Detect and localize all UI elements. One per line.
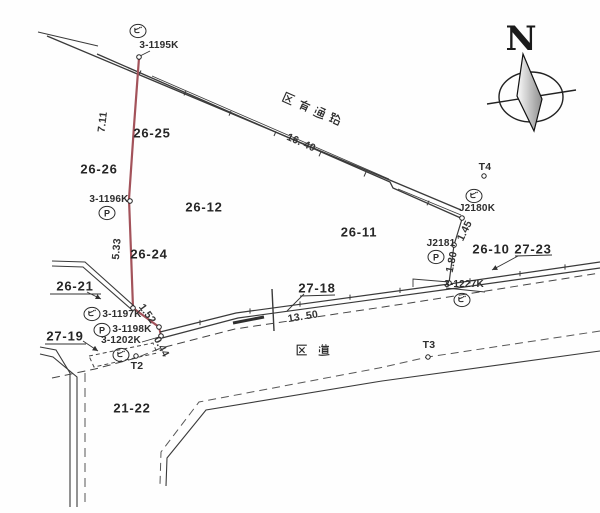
marker-bi-3-1202k xyxy=(113,348,129,361)
point-label-3-1197k: 3-1197K xyxy=(102,310,141,320)
parcel-label-27-18: 27-18 xyxy=(298,282,335,295)
point-label-j2180k: J2180K xyxy=(459,204,495,214)
parcel-label-26-11: 26-11 xyxy=(341,226,378,239)
point-label-t2: T2 xyxy=(131,361,144,372)
marker-p-letter: P xyxy=(104,209,110,219)
marker-bi-3-1197k xyxy=(84,307,100,320)
marker-bi-j2180k xyxy=(466,189,482,202)
point-label-t4: T4 xyxy=(479,162,492,173)
parcel-label-26-21: 26-21 xyxy=(56,280,93,293)
point-label-3-1227k: 3-1227K xyxy=(444,280,484,290)
arrow-27-23 xyxy=(492,256,518,270)
highlighted-boundary-red xyxy=(129,58,161,336)
pole-line xyxy=(272,289,274,331)
south-road-boundary xyxy=(160,331,600,486)
parcel-label-26-24: 26-24 xyxy=(130,248,167,261)
parcel-label-21-22: 21-22 xyxy=(113,402,150,415)
survey-map: N xyxy=(0,0,600,513)
marker-bi-3-1195k xyxy=(130,24,146,37)
compass-n-letter: N xyxy=(505,19,536,59)
point-label-3-1198k: 3-1198K xyxy=(112,325,151,335)
parcel-label-26-10: 26-10 xyxy=(472,243,509,256)
parcel-label-26-12: 26-12 xyxy=(185,201,222,214)
point-label-t3: T3 xyxy=(423,340,436,351)
lower-road-north-edge xyxy=(160,262,600,338)
parcel-label-27-19: 27-19 xyxy=(46,330,83,343)
north-compass: N xyxy=(487,19,576,131)
upper-road-label xyxy=(282,92,341,126)
parcel-label-27-23: 27-23 xyxy=(514,243,551,256)
compass-needle xyxy=(517,54,542,131)
marker-bi-3-1227k xyxy=(454,293,470,306)
point-label-3-1202k: 3-1202K xyxy=(101,336,141,346)
parcel-label-26-25: 26-25 xyxy=(133,127,170,140)
dashed-parcel-27-19 xyxy=(89,343,157,367)
arrow-27-19 xyxy=(83,341,98,351)
point-label-3-1196k: 3-1196K xyxy=(89,195,128,205)
marker-p-3-1196k: P xyxy=(99,206,115,219)
measurement-5-33: 5.33 xyxy=(111,238,123,260)
point-label-j2181: J2181 xyxy=(427,239,456,249)
bottom-left-road xyxy=(40,347,85,507)
parcel-label-26-26: 26-26 xyxy=(80,163,117,176)
leader-27-18 xyxy=(287,294,304,311)
marker-p-letter: P xyxy=(99,326,105,336)
map-drawing: N xyxy=(0,0,600,513)
point-label-3-1195k: 3-1195K xyxy=(139,41,178,51)
measurement-7-11: 7.11 xyxy=(97,111,110,133)
lower-road-label xyxy=(297,344,329,355)
marker-p-j2181: P xyxy=(428,250,444,263)
marker-p-letter: P xyxy=(433,253,439,263)
